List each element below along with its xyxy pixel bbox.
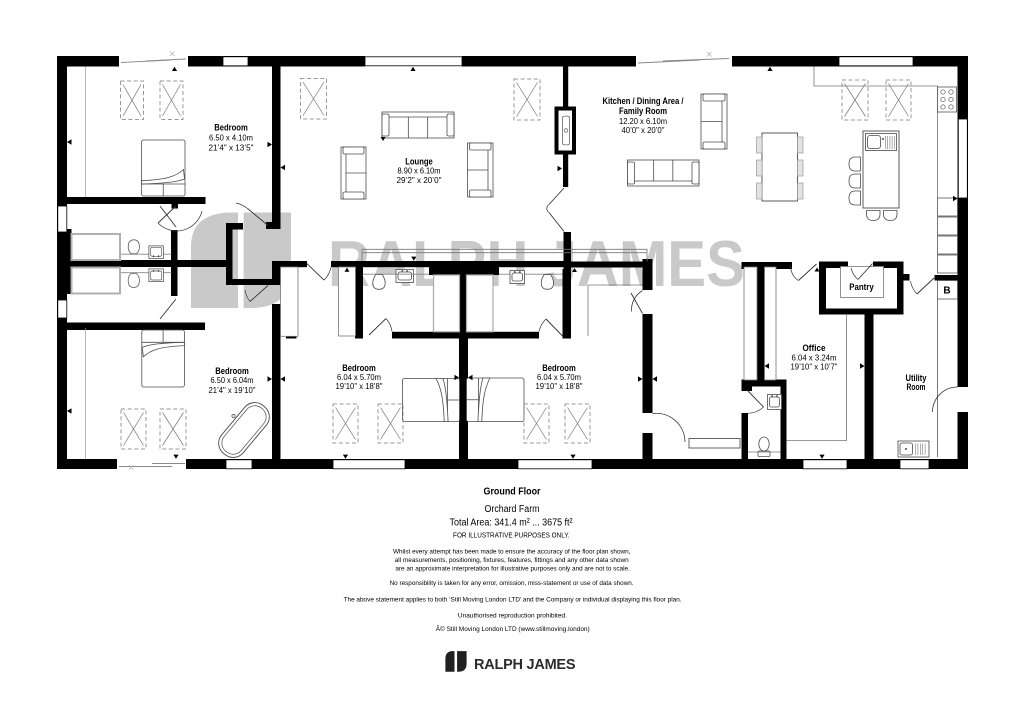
- svg-text:21’4" x 13’5": 21’4" x 13’5": [209, 143, 254, 152]
- svg-text:6.04 x 3.24m: 6.04 x 3.24m: [792, 353, 837, 362]
- svg-text:19’10" x 10’7": 19’10" x 10’7": [791, 362, 838, 371]
- svg-text:all measurements, positioning,: all measurements, positioning, fixtures,…: [395, 557, 629, 564]
- svg-text:19’10" x 18’8": 19’10" x 18’8": [536, 382, 583, 391]
- svg-text:B: B: [943, 286, 950, 297]
- svg-text:40’0" x 20’0": 40’0" x 20’0": [622, 126, 665, 135]
- svg-text:19’10" x 18’8": 19’10" x 18’8": [336, 382, 383, 391]
- svg-text:Unauthorised reproduction proh: Unauthorised reproduction prohibited.: [458, 612, 567, 619]
- svg-text:Kitchen / Dining Area /: Kitchen / Dining Area /: [603, 96, 684, 106]
- svg-text:Bedroom: Bedroom: [342, 363, 376, 373]
- svg-text:FOR ILLUSTRATIVE PURPOSES ONLY: FOR ILLUSTRATIVE PURPOSES ONLY.: [453, 532, 570, 539]
- svg-text:The above statement applies to: The above statement applies to both ‘Sti…: [344, 596, 682, 603]
- svg-text:6.50 x 4.10m: 6.50 x 4.10m: [209, 133, 253, 142]
- svg-text:Bedroom: Bedroom: [542, 363, 576, 373]
- svg-text:Â© Still Moving London LTD (ww: Â© Still Moving London LTD (www.stillmov…: [436, 624, 590, 633]
- svg-text:6.50 x 6.04m: 6.50 x 6.04m: [211, 376, 254, 385]
- svg-text:Room: Room: [907, 382, 926, 392]
- svg-text:6.04 x 5.70m: 6.04 x 5.70m: [337, 373, 381, 382]
- svg-text:8.90 x 6.10m: 8.90 x 6.10m: [398, 167, 441, 176]
- svg-text:Bedroom: Bedroom: [214, 122, 248, 132]
- svg-text:Lounge: Lounge: [405, 156, 433, 166]
- svg-text:Family Room: Family Room: [619, 106, 667, 116]
- svg-text:RALPH JAMES: RALPH JAMES: [474, 657, 576, 673]
- svg-text:Whilst every attempt has been: Whilst every attempt has been made to en…: [393, 548, 631, 555]
- svg-text:Pantry: Pantry: [849, 282, 874, 292]
- svg-text:No responsibility is taken for: No responsibility is taken for any error…: [390, 580, 634, 587]
- svg-text:Office: Office: [803, 343, 826, 353]
- svg-text:Ground Floor: Ground Floor: [484, 486, 541, 498]
- svg-text:12.20 x 6.10m: 12.20 x 6.10m: [619, 117, 667, 126]
- svg-text:29’2" x 20’0": 29’2" x 20’0": [397, 176, 442, 185]
- svg-text:Total Area: 341.4 m² ... 3675: Total Area: 341.4 m² ... 3675 ft²: [450, 518, 574, 529]
- svg-text:Bedroom: Bedroom: [215, 366, 249, 376]
- svg-text:21’4" x 19’10": 21’4" x 19’10": [209, 386, 256, 395]
- svg-text:are an approximate interpretat: are an approximate interpretation for il…: [395, 566, 630, 573]
- svg-text:6.04 x 5.70m: 6.04 x 5.70m: [537, 373, 581, 382]
- svg-text:Orchard Farm: Orchard Farm: [485, 504, 540, 515]
